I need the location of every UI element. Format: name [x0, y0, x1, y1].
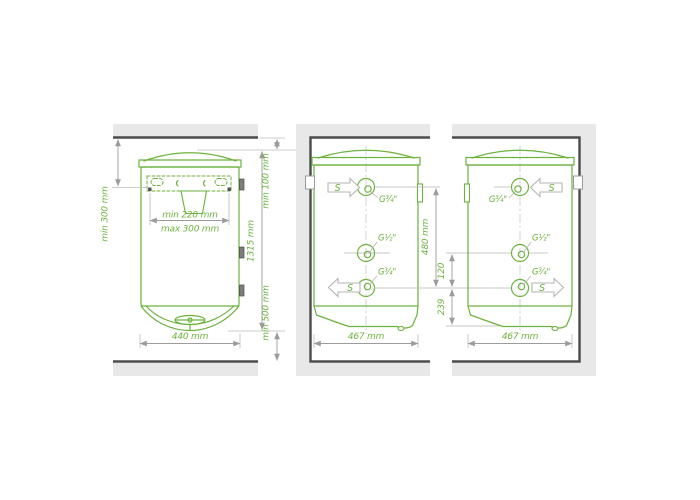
dim-label-total-height: 1315 mm: [247, 220, 257, 262]
mounting-hook-right: [204, 181, 206, 187]
flow-in-label: S: [335, 183, 341, 194]
water-heater-front: [139, 153, 244, 331]
flow-in-label: S: [549, 183, 555, 194]
side-bracket-top: [240, 179, 245, 190]
water-heater-side: G¾" G½" G¾" S S: [465, 146, 583, 334]
leader-line: [524, 242, 532, 253]
tank-collar: [139, 160, 241, 167]
tank-foot: [398, 327, 404, 331]
dim-label-top-clearance: min 100 mm: [262, 153, 272, 209]
dim-label-width: 467 mm: [348, 332, 385, 342]
dim-label-width: 440 mm: [172, 332, 209, 342]
wall-fill: [113, 124, 258, 137]
dim-label-side-offset: min 300 mm: [101, 186, 111, 242]
connection-bottom-label: G¾": [378, 268, 396, 278]
wall-bracket: [306, 176, 315, 189]
floor-fill: [452, 363, 596, 376]
anchor-point-right: [228, 188, 232, 192]
leader-line: [370, 242, 378, 253]
wall-fill: [580, 124, 596, 376]
mounting-slot-right: [215, 179, 227, 186]
dim-label-bottom-clearance: min 500 mm: [262, 285, 272, 341]
wall-section-top: [113, 124, 258, 138]
mounting-hook-left: [177, 181, 179, 187]
front-view-dimensions: min 300 mm min 220 mm max 300 mm 1315 mm…: [101, 138, 297, 361]
niche-edge: [311, 138, 431, 362]
anchor-point-left: [148, 188, 152, 192]
dim-label-width: 467 mm: [502, 332, 539, 342]
flow-in-arrow: [531, 179, 563, 197]
front-view: min 300 mm min 220 mm max 300 mm 1315 mm…: [101, 124, 297, 376]
wall-fill: [452, 124, 596, 137]
flow-out-label: S: [347, 283, 353, 294]
tank-body: [141, 167, 239, 306]
side-view-left: G¾" G½" G¾" S S 467 mm: [296, 124, 512, 376]
wall-fill: [296, 124, 310, 376]
tank-foot: [552, 327, 558, 331]
flow-out-label: S: [539, 283, 545, 294]
dim-label-bracket-min: min 220 mm: [162, 211, 218, 221]
connection-bottom-label: G¾": [532, 268, 550, 278]
dim-label-middle-to-bottom: 120: [437, 262, 447, 279]
dim-label-bottom-offset: 239: [437, 298, 447, 315]
side-view-right: G¾" G½" G¾" S S 467 mm: [452, 124, 596, 376]
flow-in-arrow: [328, 179, 360, 197]
dim-label-bracket-max: max 300 mm: [161, 225, 219, 235]
floor-fill: [296, 363, 430, 376]
dim-label-connection-span: 480 mm: [421, 218, 431, 255]
hanging-strip: [465, 184, 470, 202]
side-view-right-dimensions: 467 mm: [468, 332, 572, 348]
connection-top-label: G¾": [489, 195, 507, 205]
connection-middle-label: G½": [378, 234, 396, 244]
floor-fill: [113, 363, 258, 376]
installation-diagram: min 300 mm min 220 mm max 300 mm 1315 mm…: [0, 0, 700, 500]
wall-fill: [296, 124, 430, 137]
leader-line: [509, 192, 516, 199]
side-bracket-bottom: [240, 285, 245, 296]
wall-bracket: [574, 176, 583, 189]
connection-spacing-dimensions: 480 mm 120 239: [421, 189, 512, 327]
floor-section: [113, 362, 258, 377]
flow-out-arrow: [532, 279, 564, 297]
installation-diagram-page: min 300 mm min 220 mm max 300 mm 1315 mm…: [0, 0, 700, 500]
connection-top-label: G¾": [379, 195, 397, 205]
flow-out-arrow: [329, 279, 361, 297]
side-view-left-dimensions: 467 mm: [314, 332, 418, 348]
leader-line: [371, 192, 379, 199]
mounting-slot-left: [151, 179, 163, 186]
side-bracket-middle: [240, 247, 245, 258]
connection-middle-label: G½": [532, 234, 550, 244]
